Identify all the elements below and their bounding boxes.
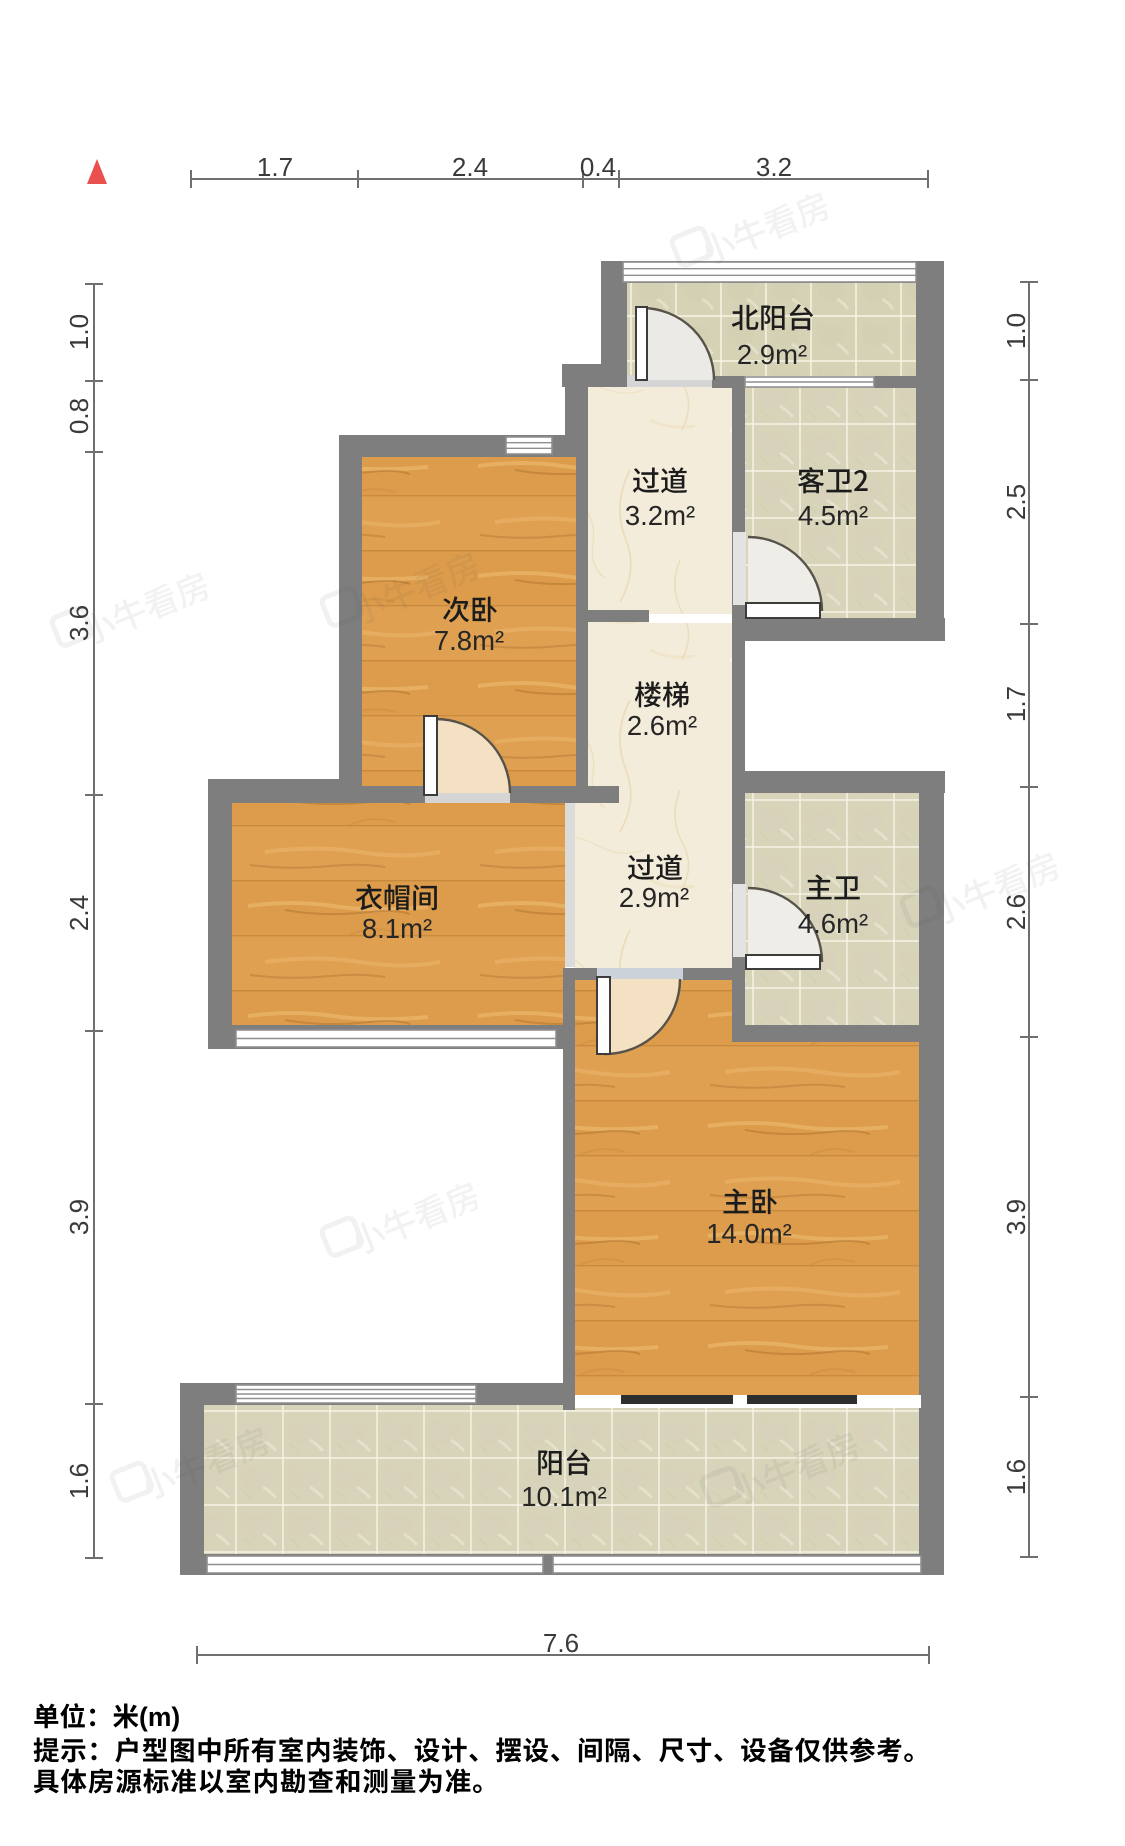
svg-text:1.7: 1.7	[1001, 686, 1031, 722]
svg-text:2.4: 2.4	[64, 895, 94, 931]
svg-text:1.6: 1.6	[1001, 1459, 1031, 1495]
svg-text:7.8m²: 7.8m²	[434, 625, 504, 656]
svg-text:1.0: 1.0	[64, 314, 94, 350]
svg-text:2.6: 2.6	[1001, 894, 1031, 930]
svg-text:7.6: 7.6	[543, 1628, 579, 1658]
svg-text:3.9: 3.9	[64, 1199, 94, 1235]
svg-text:2.4: 2.4	[452, 152, 488, 182]
svg-text:8.1m²: 8.1m²	[362, 913, 432, 944]
svg-text:1.6: 1.6	[64, 1463, 94, 1499]
svg-text:4.5m²: 4.5m²	[798, 500, 868, 531]
svg-text:2.9m²: 2.9m²	[619, 882, 689, 913]
svg-text:14.0m²: 14.0m²	[706, 1218, 792, 1249]
svg-text:(m): (m)	[139, 1702, 180, 1732]
svg-text:4.6m²: 4.6m²	[798, 908, 868, 939]
svg-text:0.4: 0.4	[580, 152, 616, 182]
svg-text:10.1m²: 10.1m²	[521, 1481, 607, 1512]
svg-text:1.7: 1.7	[257, 152, 293, 182]
svg-text:2.6m²: 2.6m²	[627, 710, 697, 741]
svg-text:0.8: 0.8	[64, 398, 94, 434]
svg-text:3.2: 3.2	[756, 152, 792, 182]
svg-text:2.9m²: 2.9m²	[737, 339, 807, 370]
svg-text:1.0: 1.0	[1001, 313, 1031, 349]
svg-text:2.5: 2.5	[1001, 484, 1031, 520]
svg-text:3.2m²: 3.2m²	[625, 500, 695, 531]
svg-text:3.9: 3.9	[1001, 1199, 1031, 1235]
